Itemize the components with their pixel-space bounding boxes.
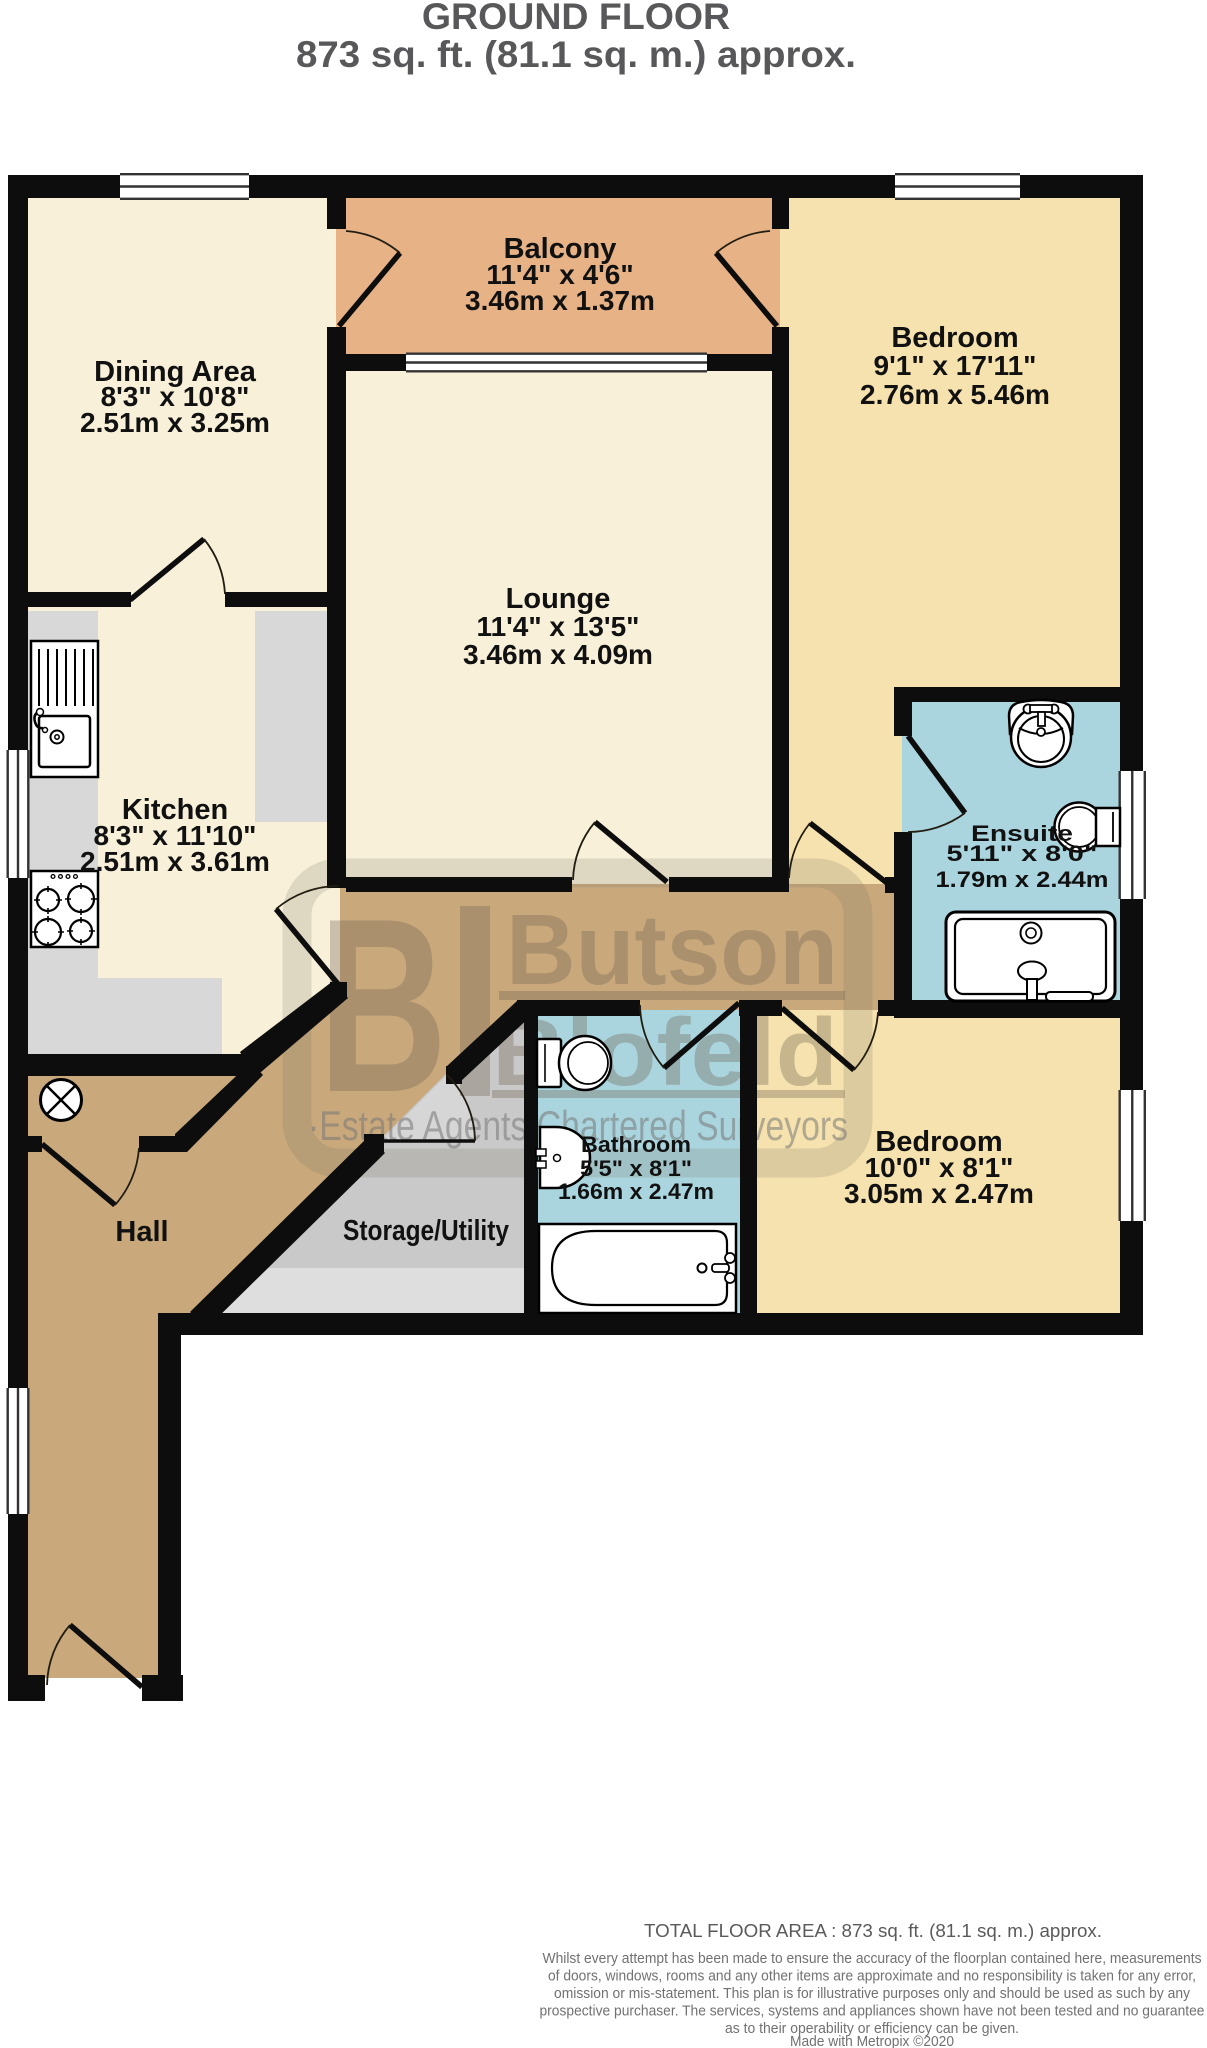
svg-text:873 sq. ft. (81.1 sq. m.) appr: 873 sq. ft. (81.1 sq. m.) approx.: [296, 33, 856, 75]
svg-text:9'1" x 17'11": 9'1" x 17'11": [874, 350, 1037, 381]
svg-text:Made with Metropix ©2020: Made with Metropix ©2020: [790, 2034, 954, 2048]
svg-text:omission or mis-statement. Thi: omission or mis-statement. This plan is …: [554, 1986, 1191, 2002]
svg-text:1.79m x 2.44m: 1.79m x 2.44m: [936, 867, 1109, 892]
svg-text:3.05m x 2.47m: 3.05m x 2.47m: [844, 1178, 1034, 1209]
svg-text:1.66m x 2.47m: 1.66m x 2.47m: [558, 1179, 714, 1204]
svg-text:Hall: Hall: [115, 1216, 168, 1248]
svg-text:Whilst every attempt has been: Whilst every attempt has been made to en…: [543, 1951, 1202, 1967]
svg-text:GROUND FLOOR: GROUND FLOOR: [422, 0, 730, 37]
svg-text:prospective purchaser. The ser: prospective purchaser. The services, sys…: [540, 2004, 1205, 2020]
svg-text:2.51m x 3.25m: 2.51m x 3.25m: [80, 407, 270, 438]
svg-text:Butson: Butson: [506, 894, 838, 1006]
svg-text:5'5" x 8'1": 5'5" x 8'1": [580, 1156, 692, 1181]
svg-text:of doors, windows, rooms and a: of doors, windows, rooms and any other i…: [548, 1969, 1196, 1985]
svg-text:11'4" x 13'5": 11'4" x 13'5": [477, 611, 640, 642]
svg-text:TOTAL FLOOR AREA : 873 sq. ft.: TOTAL FLOOR AREA : 873 sq. ft. (81.1 sq.…: [644, 1921, 1102, 1941]
svg-text:2.51m x 3.61m: 2.51m x 3.61m: [80, 846, 270, 877]
svg-text:2.76m x 5.46m: 2.76m x 5.46m: [860, 379, 1050, 410]
svg-text:3.46m x 1.37m: 3.46m x 1.37m: [465, 285, 655, 316]
svg-text:3.46m x 4.09m: 3.46m x 4.09m: [463, 639, 653, 670]
svg-text:Storage/Utility: Storage/Utility: [343, 1215, 509, 1247]
svg-text:5'11" x 8'0": 5'11" x 8'0": [947, 841, 1098, 866]
svg-text:Bathroom: Bathroom: [581, 1132, 691, 1157]
